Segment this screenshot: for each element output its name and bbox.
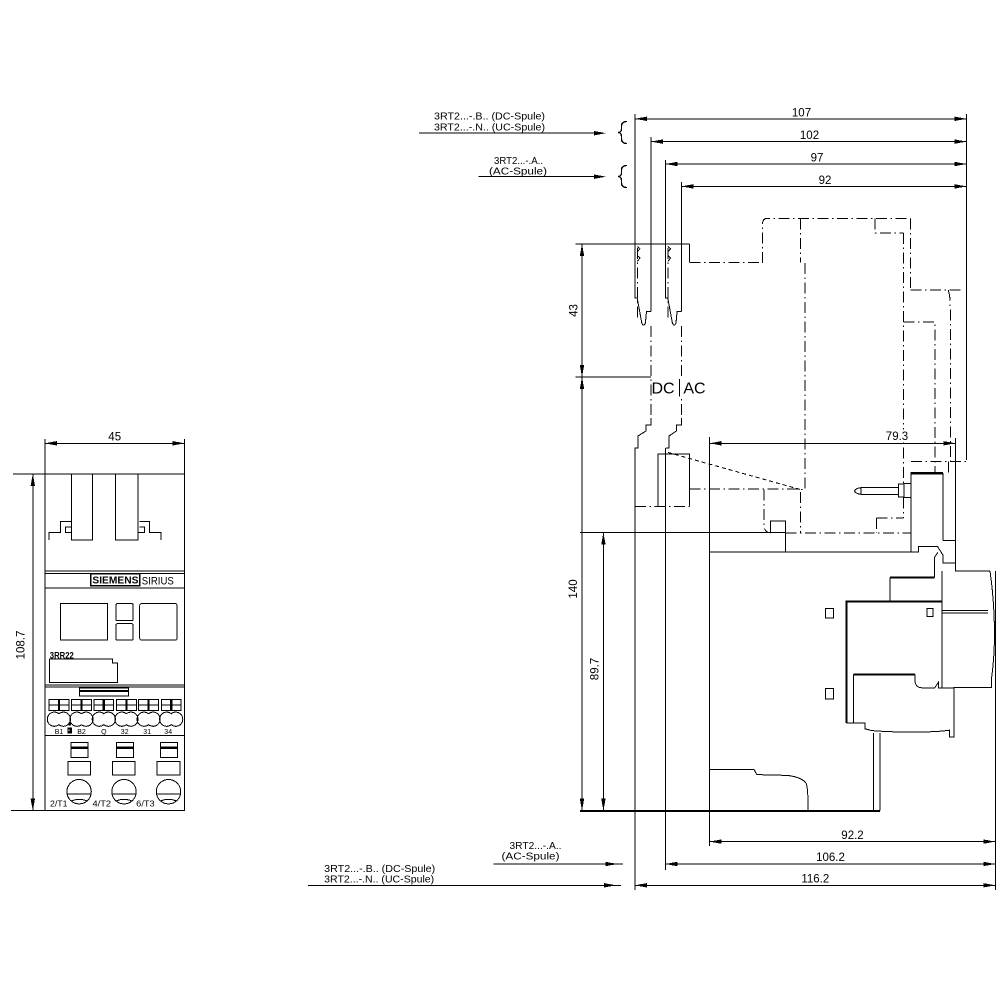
svg-text:B1: B1	[55, 729, 64, 736]
svg-text:AC: AC	[683, 381, 705, 398]
svg-text:140: 140	[568, 579, 580, 598]
svg-text:32: 32	[121, 729, 129, 736]
svg-text:B2: B2	[77, 729, 86, 736]
svg-text:(AC-Spule): (AC-Spule)	[489, 166, 547, 177]
svg-text:97: 97	[811, 153, 824, 165]
svg-text:43: 43	[569, 304, 581, 317]
svg-text:79.3: 79.3	[886, 431, 908, 443]
svg-text:106.2: 106.2	[816, 852, 845, 864]
svg-text:SIRIUS: SIRIUS	[142, 575, 174, 587]
svg-text:45: 45	[108, 432, 121, 444]
svg-text:92: 92	[819, 175, 832, 187]
svg-text:3RT2...-.B.. (DC-Spule): 3RT2...-.B.. (DC-Spule)	[324, 864, 435, 875]
svg-text:3RT2...-.A..: 3RT2...-.A..	[510, 841, 562, 852]
svg-text:4/T2: 4/T2	[93, 799, 112, 809]
svg-text:DC: DC	[651, 381, 674, 398]
svg-text:107: 107	[792, 107, 811, 119]
svg-text:6/T3: 6/T3	[136, 799, 155, 809]
svg-text:108.7: 108.7	[16, 631, 28, 660]
svg-text:SIEMENS: SIEMENS	[92, 575, 138, 587]
svg-text:Q: Q	[101, 729, 107, 736]
svg-text:34: 34	[164, 729, 172, 736]
svg-text:89.7: 89.7	[590, 658, 602, 680]
svg-text:3RT2...-.N.. (UC-Spule): 3RT2...-.N.. (UC-Spule)	[324, 875, 434, 886]
svg-text:102: 102	[800, 130, 819, 142]
svg-text:3RT2...-.N.. (UC-Spule): 3RT2...-.N.. (UC-Spule)	[434, 122, 545, 133]
svg-text:92.2: 92.2	[841, 830, 863, 842]
svg-text:3RT2...-.B.. (DC-Spule): 3RT2...-.B.. (DC-Spule)	[434, 112, 545, 123]
svg-text:116.2: 116.2	[801, 874, 829, 886]
svg-text:31: 31	[143, 729, 151, 736]
svg-text:(AC-Spule): (AC-Spule)	[502, 852, 560, 863]
svg-text:2/T1: 2/T1	[50, 799, 68, 809]
svg-text:3RT2...-.A..: 3RT2...-.A..	[494, 156, 543, 167]
